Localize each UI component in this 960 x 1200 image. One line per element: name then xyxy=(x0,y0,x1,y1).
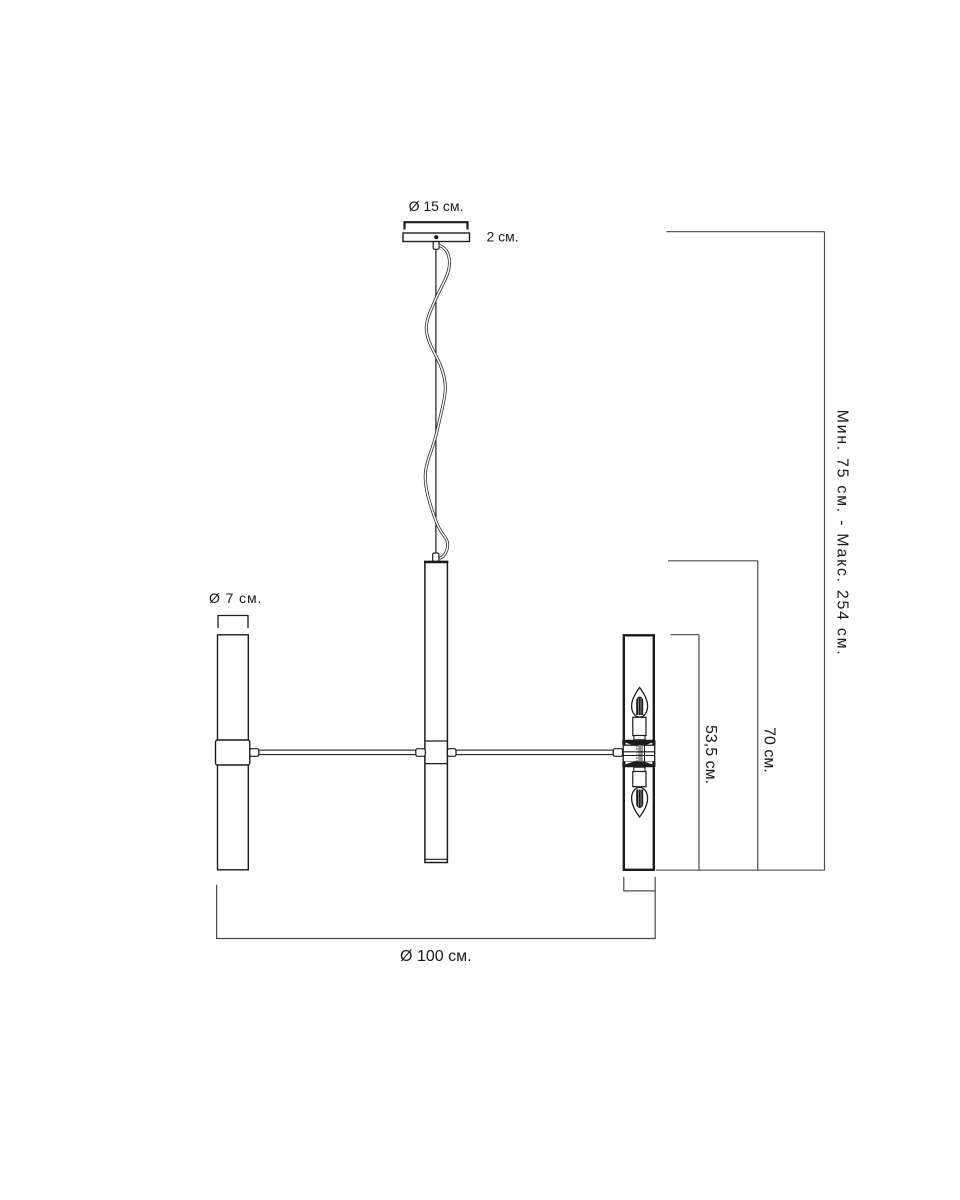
svg-text:Ø 15 см.: Ø 15 см. xyxy=(409,198,464,214)
svg-text:2 см.: 2 см. xyxy=(487,229,519,245)
svg-text:53,5 см.: 53,5 см. xyxy=(702,725,719,784)
svg-text:Ø 100 см.: Ø 100 см. xyxy=(400,948,471,965)
svg-text:Ø 7 см.: Ø 7 см. xyxy=(209,590,262,606)
svg-text:70 см.: 70 см. xyxy=(761,727,778,773)
svg-text:Мин. 75 см. - Макс. 254 см.: Мин. 75 см. - Макс. 254 см. xyxy=(834,410,851,657)
